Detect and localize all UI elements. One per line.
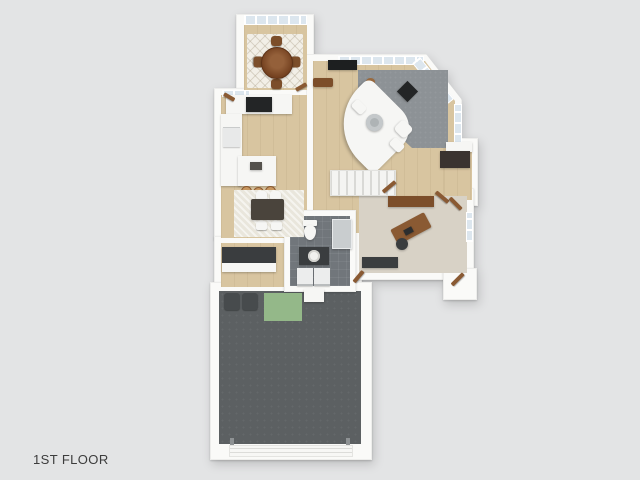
floor-label: 1ST FLOOR [33,452,109,467]
vanity-sink-icon [308,250,320,262]
storage-bin-icon [224,291,240,310]
breakfast-table-icon [251,199,284,220]
coffee-table-icon [366,114,383,131]
floor-plan [0,0,640,480]
floor-plan-image: 1ST FLOOR [0,0,640,480]
tv-icon [328,60,357,70]
kitchen-island-icon [238,156,276,186]
storage-bin-icon [242,291,258,310]
work-mat-icon [264,293,302,321]
media-bench-icon [313,78,333,87]
laundry-cabinet-icon [222,263,276,272]
garage-door-track-icon [346,438,350,445]
office-window-icon [466,212,473,242]
dining-chair-icon [271,36,282,46]
breakfast-chair-icon [271,221,282,230]
console-icon [362,257,398,268]
shower-icon [332,219,352,249]
dining-window-icon [244,15,307,25]
window-bench-icon [440,151,470,168]
island-sink-icon [250,162,262,170]
stair-cabinet-icon [388,196,434,207]
garage-door-icon [229,445,353,457]
garage-door-track-icon [230,438,234,445]
washer-icon [297,268,313,286]
refrigerator-icon [223,127,240,147]
round-dining-table-icon [261,47,293,79]
dryer-icon [314,268,330,286]
laundry-counter-icon [222,247,276,263]
breakfast-chair-icon [256,221,267,230]
dining-chair-icon [271,79,282,89]
garage-step [304,289,324,302]
staircase-icon [330,170,396,196]
range-icon [246,97,272,112]
living-right-window-icon [454,104,462,146]
desk-chair-icon [396,238,408,250]
